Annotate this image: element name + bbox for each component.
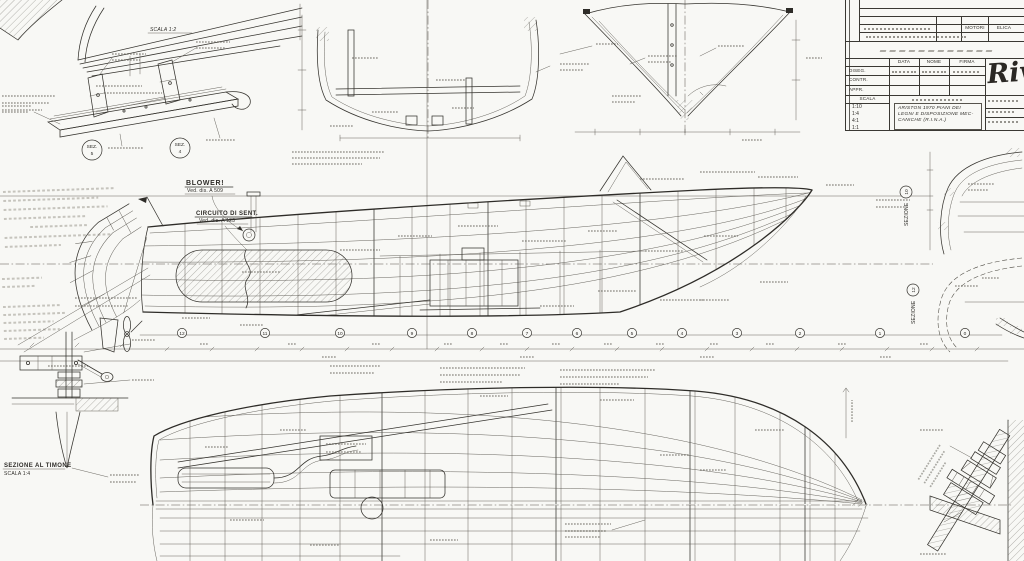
detail-chine-section: SCALA 1:2: [0, 0, 302, 110]
right-col-squiggle: [988, 100, 1018, 102]
title-line-3: CANICHE (R.I.N.A.): [898, 118, 946, 124]
sezione-12-num: 12: [911, 287, 917, 293]
col-nome: NOME: [919, 59, 949, 64]
section-10: SEZIONE 10: [900, 148, 1024, 254]
rev-line: [859, 16, 1024, 17]
cursive-note-squiggle: [880, 50, 993, 52]
rev-cell-elica: ELICA: [989, 25, 1019, 30]
rev-note-squiggle: [864, 28, 930, 30]
propeller-and-rudder: [100, 317, 142, 353]
sez-4-marker-num: 4: [179, 149, 182, 155]
sezione-12-label: SEZIONE: [911, 300, 917, 324]
blower-ref-label: Ved. dis. A 509: [187, 188, 223, 194]
station-label: 1: [879, 331, 882, 337]
sez-5-marker-label: SEZ.: [87, 144, 98, 150]
title-head-squiggle: [912, 99, 962, 101]
sez-5-marker-num: 5: [91, 151, 94, 157]
blueprint-sheet: SCALA 1:2 SEZ. 5 SEZ. 4: [0, 0, 1024, 561]
pencil-notes: [0, 188, 120, 339]
profile-view: [138, 156, 812, 335]
entry-squiggle: [922, 71, 946, 73]
scale-1-4: 1:4: [852, 111, 859, 118]
station-label: 6: [576, 331, 579, 337]
scale-1-1: 1:1: [852, 125, 859, 132]
sezione-10-label: SEZIONE: [904, 202, 910, 226]
rev-cell-motori: MOTORI: [962, 25, 988, 30]
detail-rudder: SEZIONE AL TIMONE SCALA 1:4: [3, 298, 156, 482]
frame-section-midship: [298, 0, 618, 141]
station-label: 0: [964, 331, 967, 337]
rev-note-squiggle: [866, 36, 966, 38]
row-contr: CONTR.: [849, 77, 868, 82]
rev-line: [859, 8, 1024, 9]
station-label: 3: [736, 331, 739, 337]
entry-squiggle: [953, 71, 979, 73]
sez-4-marker-label: SEZ.: [175, 142, 186, 148]
station-label: 12: [179, 331, 185, 337]
frame-section-bow: [575, 3, 822, 140]
scala-label: SCALA: [846, 96, 889, 101]
plan-view: [140, 384, 1012, 561]
row-diseg: DISEG.: [849, 68, 866, 73]
fuel-tank: [176, 250, 352, 308]
station-scale: 12 11 10 9 8 7 6 5 4 3 2 1 0: [177, 328, 969, 337]
right-col-squiggle: [988, 111, 1014, 113]
scale-1-10: 1:10: [852, 104, 862, 111]
station-label: 11: [263, 331, 268, 337]
rudder-section-label: SEZIONE AL TIMONE: [4, 463, 71, 469]
rev-line: [846, 41, 1024, 42]
station-label: 7: [526, 331, 529, 337]
entry-squiggle: [892, 71, 916, 73]
scale-4-1: 4:1: [852, 118, 859, 125]
right-col-line: [985, 117, 1024, 118]
table-divider: [889, 58, 890, 130]
table-line: [846, 85, 985, 86]
col-firma: FIRMA: [949, 59, 985, 64]
station-label: 5: [631, 331, 634, 337]
table-line: [846, 66, 985, 67]
rudder-scale-label: SCALA 1:4: [4, 471, 30, 477]
station-label: 8: [471, 331, 474, 337]
riva-logo: Riva: [986, 57, 1024, 94]
title-block: MOTORI ELICA DATA NOME FIRMA DISEG. CONT…: [845, 0, 1024, 131]
blower-label: BLOWER!: [186, 180, 224, 187]
row-appr: APPR.: [849, 87, 864, 92]
col-data: DATA: [889, 59, 919, 64]
station-label: 4: [681, 331, 684, 337]
bilge-ref-label: Ved. dis. A 123: [199, 218, 235, 224]
detail-stern-tube: [911, 419, 1024, 561]
detail-scale-label: SCALA 1:2: [150, 27, 176, 33]
rev-divider: [859, 0, 860, 41]
right-col-line: [985, 108, 1024, 109]
table-line: [846, 75, 985, 76]
title-block-inner-border: [849, 0, 850, 130]
rev-line: [859, 32, 1024, 33]
right-col-squiggle: [988, 121, 1018, 123]
station-label: 10: [337, 331, 343, 337]
bilge-label: CIRCUITO DI SENT.: [196, 211, 258, 217]
profile-callouts: BLOWER! Ved. dis. A 509 CIRCUITO DI SENT…: [185, 180, 258, 250]
sezione-10-num: 10: [904, 189, 910, 195]
station-label: 9: [411, 331, 414, 337]
station-label: 2: [799, 331, 802, 337]
